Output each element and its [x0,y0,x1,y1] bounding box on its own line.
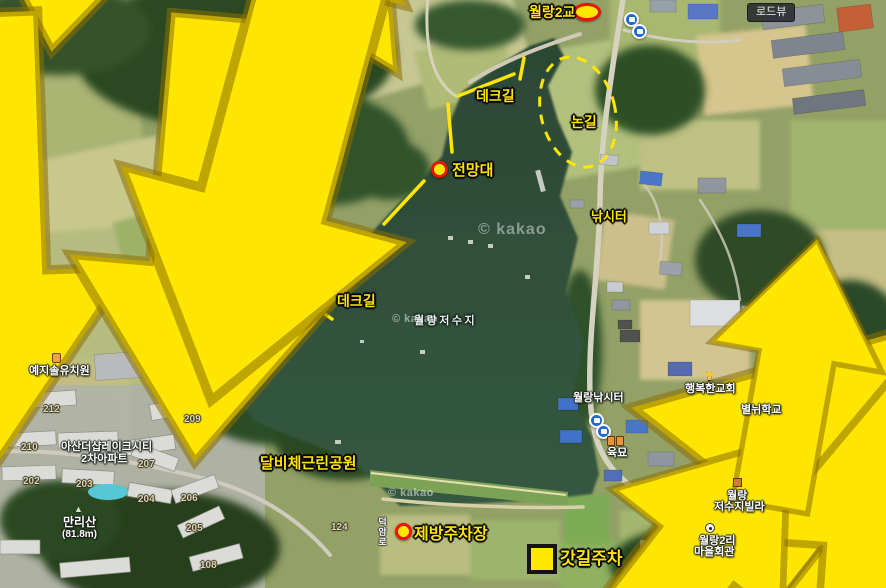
kindergarten-icon [52,353,61,363]
mountain-peak-icon: ▲ [74,505,83,514]
shoulder-parking-marker [527,544,557,574]
church-icon [708,371,711,380]
route-arrow [0,8,137,481]
building-number: 108 [200,561,217,571]
building-number: 210 [21,443,38,453]
building-number: 202 [23,477,40,487]
dam-parking-label: 제방주차장 [414,527,488,543]
route-overlay [0,0,886,588]
building-number: 205 [186,524,203,534]
kakao-watermark: © kakao [392,313,438,325]
mountain-label: 만리산 [63,516,96,528]
apartment-label-line1: 아산더샵레이크시티 [61,442,152,453]
mountain-elevation: (81.8m) [62,530,97,540]
building-number: 209 [184,415,201,425]
building-number: 206 [181,494,198,504]
deck-trail-north-label: 데크길 [476,89,515,103]
paddy-loop-dashed [529,49,628,176]
restaurant-icon [607,436,615,446]
apartment-label-line2: 2차아파트 [81,454,128,465]
building-number: 204 [138,495,155,505]
village-hall-label-line2: 마을회관 [694,547,734,558]
map-canvas[interactable]: 월랑2교 데크길 논길 전망대 낚시터 데크길 달비체근린공원 제방주차장 갓길… [0,0,886,588]
school-label: 별뉘학교 [741,405,781,416]
shoulder-parking-label: 갓길주차 [560,550,623,567]
villa-icon [733,478,742,487]
observatory-marker [431,161,448,178]
fishing-site-label: 월랑낚시터 [573,393,624,404]
dam-parking-marker [395,523,412,540]
bus-stop-icon[interactable] [632,24,647,39]
villa-label-line2: 저수지빌라 [714,502,765,513]
church-label: 행복한교회 [685,384,736,395]
building-number: 203 [76,480,93,490]
roadview-button[interactable]: 로드뷰 [747,3,795,22]
bridge-marker [573,3,601,21]
fishing-spot-label: 낚시터 [591,210,627,223]
route-arrows [0,0,886,588]
deck-trail-west-label: 데크길 [337,294,376,308]
bridge-label: 월랑2교 [529,5,575,19]
restaurant-label: 육묘 [607,448,627,459]
restaurant-icon [616,436,624,446]
road-name-label: 덕암로 [376,517,389,547]
park-label: 달비체근린공원 [260,456,357,471]
kakao-watermark: © kakao [478,221,547,239]
paddy-trail-label: 논길 [571,115,597,129]
observatory-label: 전망대 [452,163,493,178]
kindergarten-label: 예지솔유치원 [29,366,90,377]
building-number: 212 [43,405,60,415]
kakao-watermark: © kakao [388,487,434,499]
building-number: 207 [138,460,155,470]
village-hall-icon [705,523,715,533]
building-number: 124 [331,523,348,533]
